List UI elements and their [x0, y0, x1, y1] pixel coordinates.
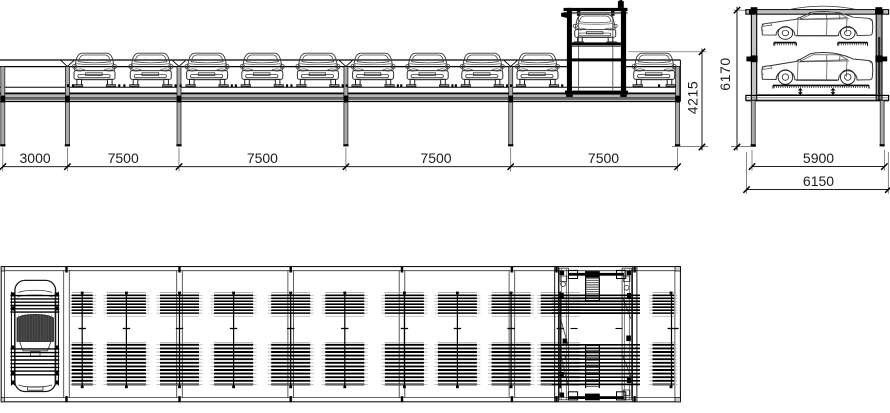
svg-text:7500: 7500 — [108, 150, 139, 166]
svg-text:6150: 6150 — [803, 173, 834, 189]
svg-text:6170: 6170 — [717, 57, 733, 91]
svg-text:7500: 7500 — [247, 150, 278, 166]
svg-text:5900: 5900 — [803, 150, 834, 166]
svg-text:7500: 7500 — [588, 150, 619, 166]
svg-text:3000: 3000 — [20, 150, 51, 166]
svg-text:7500: 7500 — [420, 150, 451, 166]
svg-text:4215: 4215 — [685, 81, 701, 115]
